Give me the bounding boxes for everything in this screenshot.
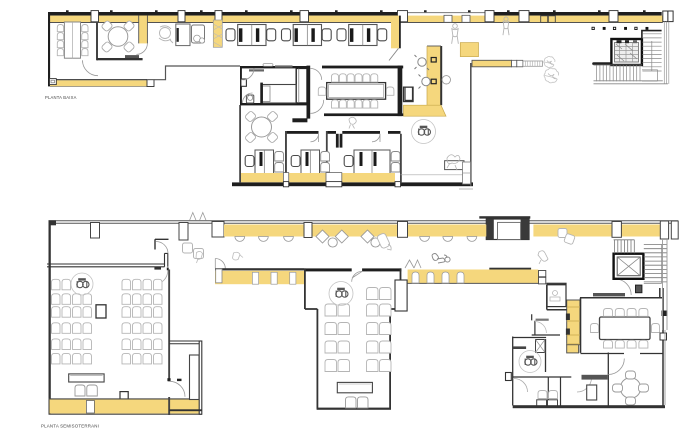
svg-text:PLANTA SEMISOTERRANI: PLANTA SEMISOTERRANI — [41, 424, 99, 429]
svg-text:PLANTA BAIXA: PLANTA BAIXA — [45, 95, 77, 100]
